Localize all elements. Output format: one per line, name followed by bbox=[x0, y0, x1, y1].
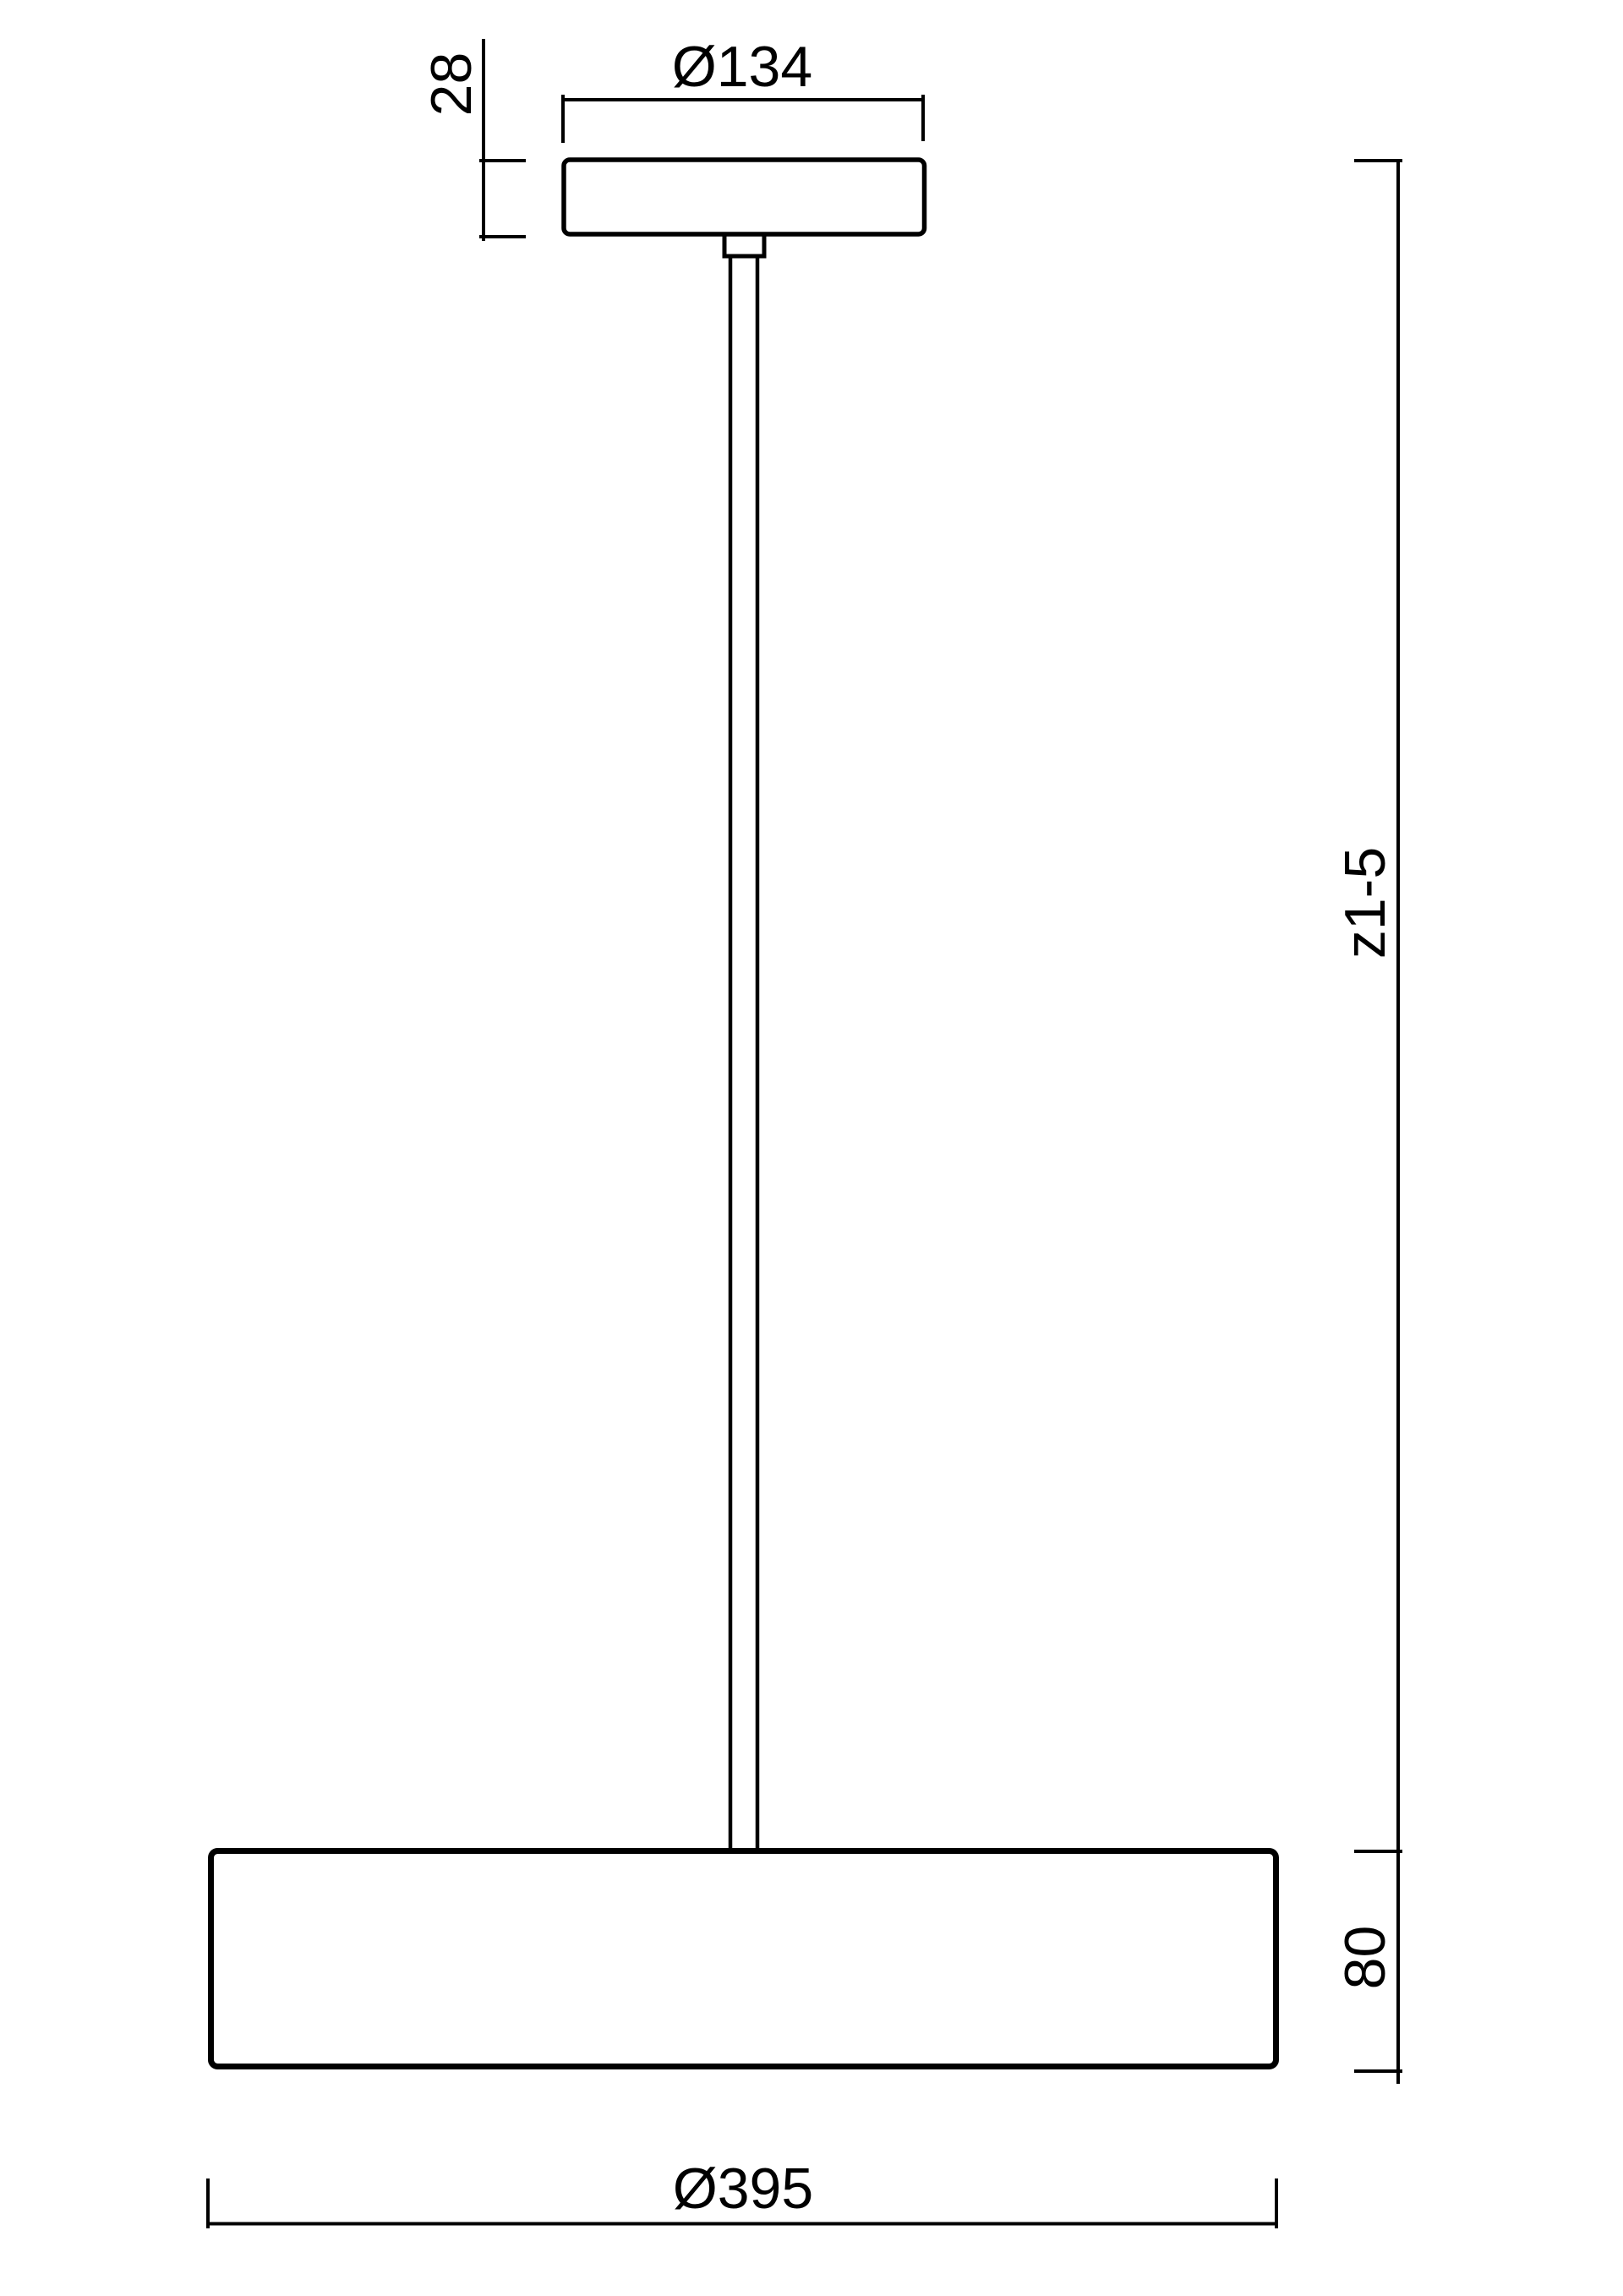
svg-text:Ø395: Ø395 bbox=[673, 2157, 813, 2221]
svg-text:Ø134: Ø134 bbox=[672, 35, 812, 99]
svg-text:80: 80 bbox=[1333, 1926, 1397, 1990]
svg-text:28: 28 bbox=[419, 52, 484, 117]
svg-text:z1-5: z1-5 bbox=[1333, 847, 1397, 959]
